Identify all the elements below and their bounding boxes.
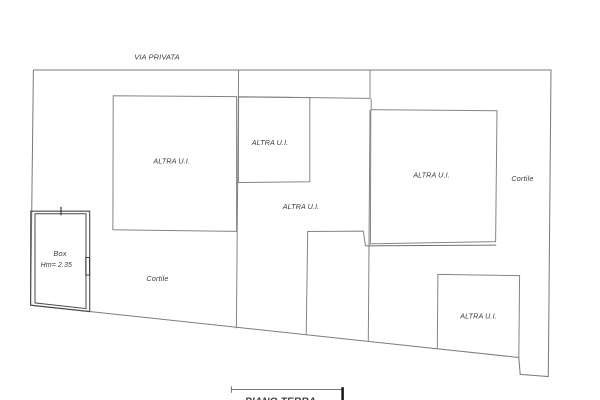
svg-text:ALTRA U.I.: ALTRA U.I.: [282, 202, 320, 211]
svg-text:ALTRA U.I.: ALTRA U.I.: [152, 156, 190, 165]
svg-text:VIA PRIVATA: VIA PRIVATA: [134, 52, 180, 61]
svg-text:Hm= 2.35: Hm= 2.35: [41, 262, 72, 269]
svg-text:ALTRA U.I.: ALTRA U.I.: [459, 311, 497, 320]
svg-text:Cortile: Cortile: [146, 274, 168, 283]
svg-text:PIANO TERRA: PIANO TERRA: [245, 397, 316, 400]
svg-text:Box: Box: [53, 249, 66, 258]
svg-text:Cortile: Cortile: [511, 174, 533, 183]
svg-text:ALTRA U.I.: ALTRA U.I.: [251, 138, 289, 147]
svg-text:ALTRA U.I.: ALTRA U.I.: [412, 171, 450, 180]
